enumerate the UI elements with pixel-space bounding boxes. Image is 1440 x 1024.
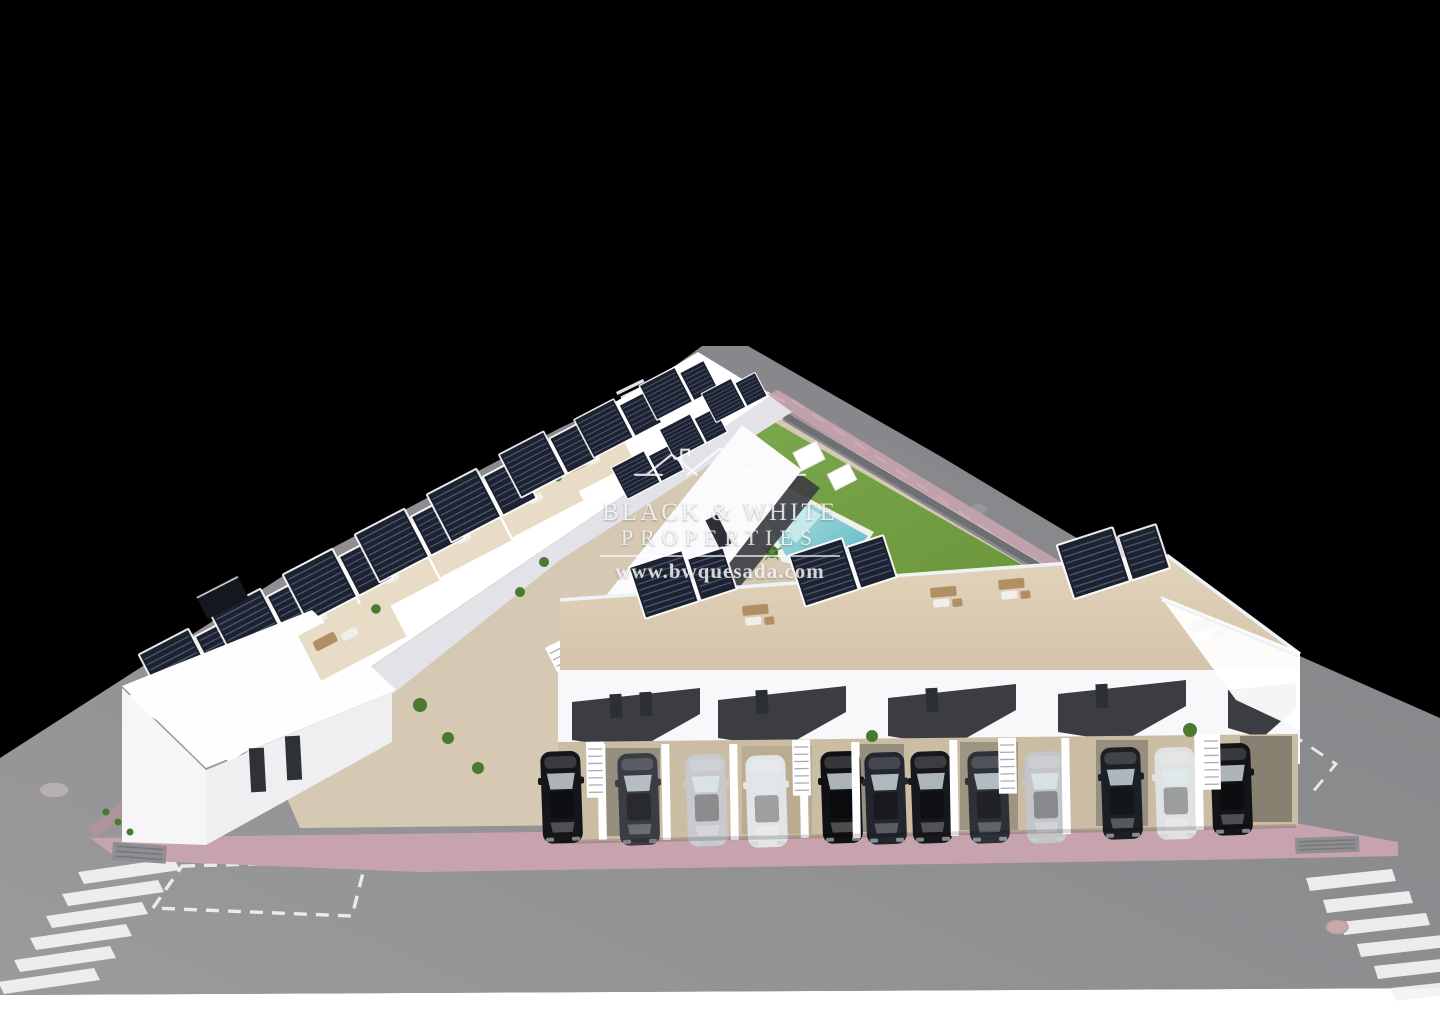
external-staircase xyxy=(998,738,1017,794)
car xyxy=(682,753,731,847)
render-image: BLACK & WHITE PROPERTIES www.bwquesada.c… xyxy=(0,0,1440,1024)
car xyxy=(1097,746,1146,840)
car xyxy=(614,752,663,846)
car xyxy=(1151,746,1200,840)
external-staircase xyxy=(1202,734,1221,790)
car xyxy=(861,751,910,845)
car xyxy=(537,750,586,844)
manhole-cover xyxy=(39,782,69,798)
drain-grate xyxy=(1295,836,1360,854)
manhole-cover xyxy=(1326,920,1348,934)
car xyxy=(742,754,791,848)
car xyxy=(907,750,956,844)
villa-window xyxy=(249,748,266,793)
external-staircase xyxy=(586,742,605,798)
external-staircase xyxy=(792,740,811,796)
villa-window xyxy=(285,736,302,781)
aerial-scene xyxy=(0,0,1440,1024)
drain-grate xyxy=(112,842,167,864)
